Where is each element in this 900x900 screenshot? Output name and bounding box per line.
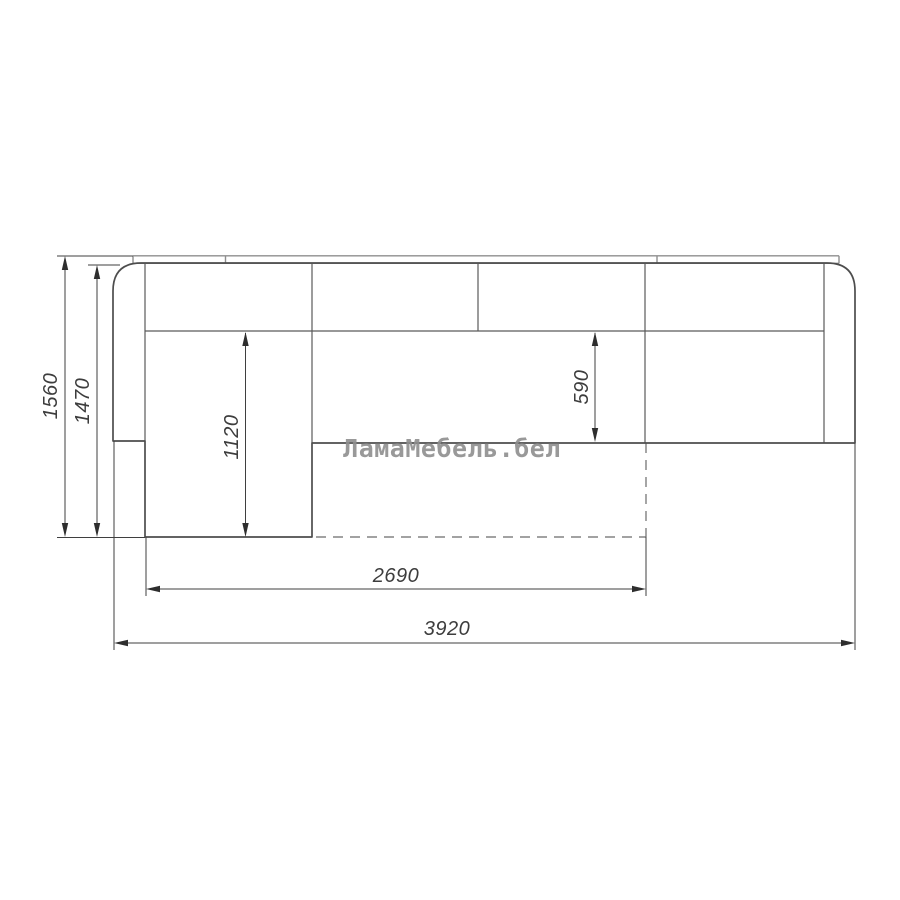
dim-label-depth-body: 1470 <box>72 378 94 425</box>
dim-label-seat-depth: 590 <box>571 370 593 405</box>
sofa-inner-lines <box>145 264 824 443</box>
sofa-technical-drawing-page: 1560 1470 1120 590 2690 3920 ЛамаМебель.… <box>0 0 900 900</box>
watermark-text: ЛамаМебель.бел <box>343 434 561 463</box>
sofa-technical-drawing: 1560 1470 1120 590 2690 3920 ЛамаМебель.… <box>0 0 900 900</box>
dim-label-width-total: 3920 <box>424 618 471 640</box>
sofa-outer-contour <box>113 263 855 537</box>
dim-label-width-bed: 2690 <box>372 565 420 587</box>
dim-label-depth-total: 1560 <box>40 373 62 420</box>
dim-label-chaise-length: 1120 <box>221 414 243 459</box>
